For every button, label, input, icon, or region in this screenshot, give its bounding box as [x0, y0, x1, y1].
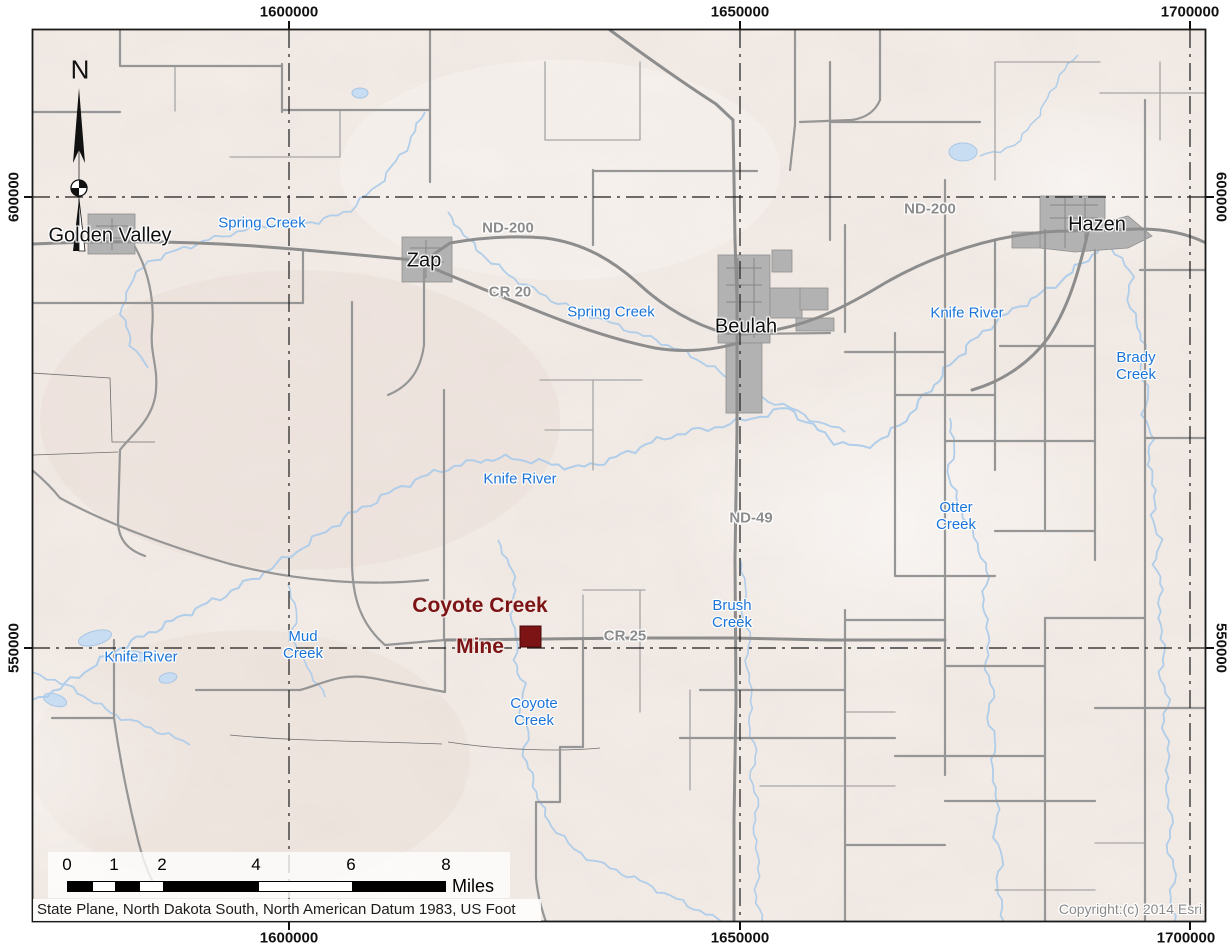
- scale-tick-1: 1: [109, 855, 118, 875]
- scale-tick-6: 6: [346, 855, 355, 875]
- grid-tick: [1206, 196, 1214, 198]
- grid-tick: [24, 647, 32, 649]
- map-canvas[interactable]: [0, 0, 1232, 949]
- scale-tick-2: 2: [157, 855, 166, 875]
- grid-tick: [288, 922, 290, 930]
- grid-tick: [1189, 21, 1191, 29]
- datum-note: State Plane, North Dakota South, North A…: [33, 899, 541, 921]
- grid-tick: [288, 21, 290, 29]
- copyright-note: Copyright:(c) 2014 Esri: [1059, 901, 1202, 917]
- scale-tick-4: 4: [251, 855, 260, 875]
- scale-bar-bar: [67, 881, 446, 892]
- mine-marker[interactable]: [520, 626, 541, 647]
- scale-unit-label: Miles: [452, 876, 494, 897]
- grid-tick: [1206, 647, 1214, 649]
- map-document: 1600000 1650000 1700000 1600000 1650000 …: [0, 0, 1232, 949]
- scale-tick-8: 8: [441, 855, 450, 875]
- grid-tick: [739, 21, 741, 29]
- grid-tick: [1189, 922, 1191, 930]
- grid-tick: [24, 196, 32, 198]
- scale-tick-0: 0: [62, 855, 71, 875]
- scale-bar: 0 1 2 4 6 8 Miles: [48, 852, 510, 898]
- grid-tick: [739, 922, 741, 930]
